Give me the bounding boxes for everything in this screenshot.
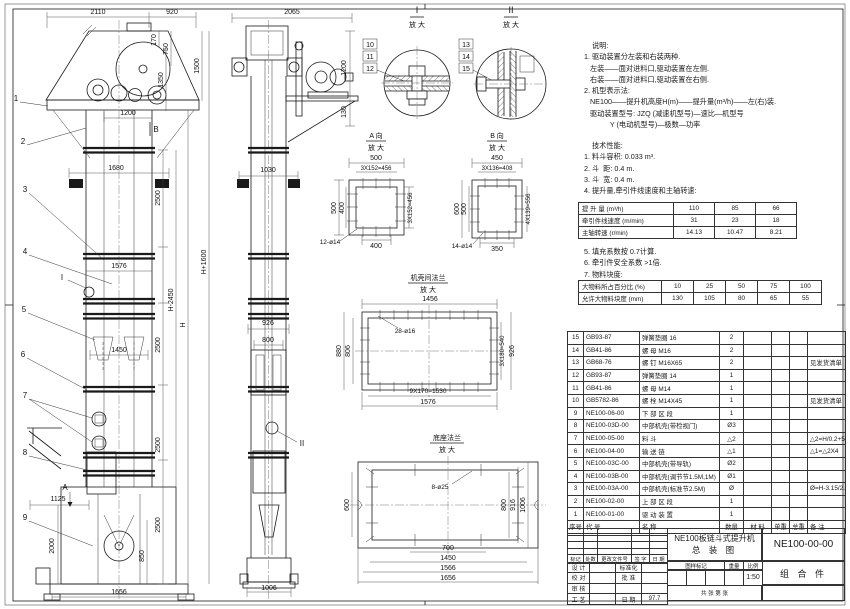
- dim-label: 1200: [341, 60, 348, 76]
- base-flange-view: [350, 443, 546, 584]
- table-row: [568, 535, 668, 542]
- dim-label: H+1600: [201, 250, 208, 275]
- title-block-empty-cell: [762, 585, 845, 601]
- dim-label: 350: [491, 246, 503, 253]
- dim-label: 3X152=456: [361, 166, 393, 172]
- dim-label: 4X139=556: [526, 193, 532, 225]
- table-row: 2NE100-02-00上 部 区 段1: [568, 495, 846, 508]
- dim-label: 2500: [155, 437, 162, 453]
- text-line: 4. 提升量,牵引件线速度和主轴转速:: [584, 185, 697, 196]
- dim-label: 500: [331, 202, 338, 214]
- part-balloon-9: 9: [23, 513, 28, 522]
- title-block: 标记处数更改文件号签 字日 期 设 计标准化校 对批 准审 核工 艺日 期97.…: [567, 528, 845, 601]
- notes-block: 说明:1. 驱动装置分左装和右装两种. 左装——面对进料口,驱动装置在左侧. 右…: [584, 40, 776, 130]
- table-row: 4NE100-03B-00中部机壳(调节节1.5M,1M)Ø1: [568, 470, 846, 483]
- view-title-A-sub: 放 大: [368, 143, 384, 152]
- table-row: 审 核: [568, 583, 668, 594]
- dim-label: 1656: [111, 589, 127, 596]
- text-line: 1. 料斗容积: 0.033 m³.: [584, 151, 697, 162]
- dim-label: 1500: [194, 58, 201, 74]
- table-row: 1NE100-01-00驱 动 装 置1: [568, 508, 846, 521]
- bom-table: 15GB93-87弹簧垫圈 16214GB41-86螺 母 M16213GB68…: [567, 331, 846, 534]
- dim-label: 600: [344, 499, 351, 511]
- dim-label: 500: [461, 203, 468, 215]
- part-balloon-3: 3: [23, 185, 28, 194]
- detail-title-II: II: [508, 5, 513, 15]
- dim-label: 400: [339, 202, 346, 214]
- stamp-value-table: 1:50: [667, 569, 763, 586]
- dim-label: 1576: [111, 263, 127, 270]
- part-balloon-12: 12: [366, 66, 374, 73]
- part-balloon-10: 10: [366, 42, 374, 49]
- dim-label: 1656: [440, 575, 456, 582]
- table-row: 11GB41-86螺 母 M141: [568, 382, 846, 395]
- text-line: 说明:: [584, 40, 776, 51]
- view-title-base-flange: 底座法兰: [433, 433, 461, 442]
- dim-label: 3X136=408: [482, 166, 514, 172]
- dim-label: 400: [370, 243, 382, 250]
- table-row: 牵引件线速度 (m/min)312318: [579, 215, 797, 227]
- detail-title-II-sub: 放 大: [503, 20, 519, 29]
- text-line: Y (电动机型号)—极数—功率: [584, 119, 776, 130]
- view-title-casing-flange: 机壳间法兰: [411, 273, 446, 282]
- part-balloon-6: 6: [21, 350, 26, 359]
- dim-label: 1450: [111, 347, 127, 354]
- detail-title-I-sub: 放 大: [409, 20, 425, 29]
- drawing-title-line2: 总 装 图: [692, 544, 737, 556]
- part-balloon-7: 7: [23, 391, 28, 400]
- dim-label: 806: [345, 345, 352, 357]
- part-balloon-1: 1: [14, 94, 19, 103]
- dim-label: 1125: [50, 496, 65, 503]
- dim-label: 8-ø25: [432, 484, 449, 491]
- dim-label: 1680: [108, 165, 124, 172]
- dim-label: 12-ø14: [320, 239, 341, 246]
- table-row: [568, 529, 668, 536]
- table-row: 9NE100-06-00下 部 区 段1: [568, 407, 846, 420]
- view-title-base-flange-sub: 放 大: [439, 445, 455, 454]
- text-line: 5. 填充系数按 0.7计算.: [584, 246, 662, 257]
- detail-view-I: [381, 17, 453, 121]
- part-balloon-8: 8: [23, 448, 28, 457]
- view-title-B: B 向: [490, 131, 504, 140]
- dim-label: 28-ø16: [395, 328, 416, 335]
- tech-notes-block: 技术性能:1. 料斗容积: 0.033 m³.2. 斗 距: 0.4 m.3. …: [584, 140, 697, 196]
- table-row: 工 艺日 期97.7: [568, 594, 668, 605]
- table-row: 14GB41-86螺 母 M162: [568, 344, 846, 357]
- drawing-number: NE100-00-00: [762, 528, 845, 561]
- dim-label: 1200: [120, 110, 136, 117]
- dim-label: H: [180, 322, 187, 327]
- dim-label: 2500: [155, 190, 162, 206]
- table-row: 1:50: [668, 570, 763, 586]
- text-line: 7. 物料块度:: [584, 269, 662, 280]
- table-row: 15GB93-87弹簧垫圈 162: [568, 332, 846, 345]
- view-mark-A: A: [62, 483, 68, 492]
- tech-notes-block-2: 5. 填充系数按 0.7计算.6. 牵引件安全系数 >1倍.7. 物料块度:: [584, 246, 662, 280]
- dim-label: 14-ø14: [452, 243, 473, 250]
- table-row: 8NE100-03D-00中部机壳(带检视门)Ø3: [568, 420, 846, 433]
- dim-label: 1566: [440, 565, 456, 572]
- dim-label: H-2450: [168, 288, 175, 311]
- drawing-title-line1: NE100板链斗式提升机: [674, 533, 754, 544]
- table-row: [568, 542, 668, 549]
- part-balloon-15: 15: [462, 66, 470, 73]
- dim-label: 920: [166, 9, 178, 16]
- dim-label: 2000: [49, 538, 56, 554]
- part-balloon-14: 14: [462, 54, 470, 61]
- part-balloon-2: 2: [21, 137, 26, 146]
- table-row: 校 对批 准: [568, 573, 668, 584]
- part-balloon-4: 4: [23, 247, 28, 256]
- table-row: 13GB68-76螺 钉 M16X652见发货清单: [568, 357, 846, 370]
- text-line: 2. 斗 距: 0.4 m.: [584, 163, 697, 174]
- revision-table: 标记处数更改文件号签 字日 期: [567, 528, 668, 564]
- dim-label: 850: [139, 550, 146, 562]
- table-row: 3NE100-03A-00中部机壳(标准节2.5M)ØØ=H-3.15/2.5: [568, 483, 846, 496]
- view-title-casing-flange-sub: 放 大: [420, 285, 436, 294]
- part-balloon-13: 13: [462, 42, 470, 49]
- table-row: 主轴转速 (r/min)14.1310.478.21: [579, 227, 797, 239]
- detail-mark-II: II: [300, 439, 304, 448]
- table-row: 12GB93-87弹簧垫圈 141: [568, 369, 846, 382]
- dim-label: 1030: [260, 167, 276, 174]
- table-row: 7NE100-05-00料 斗△2△2=H/0.2+5.75: [568, 432, 846, 445]
- part-type-cell: 组 合 件: [762, 561, 845, 585]
- table-row: 大物料所占百分比 (%)10255075100: [579, 281, 822, 293]
- text-line: 2. 机型表示法:: [584, 85, 776, 96]
- side-view: [232, 13, 358, 600]
- table-row: 6NE100-04-00输 送 链△1△1=△2X4: [568, 445, 846, 458]
- text-line: 技术性能:: [584, 140, 697, 151]
- lump-size-table: 大物料所占百分比 (%)10255075100允许大物料块度 (mm)13010…: [578, 280, 822, 305]
- dim-label: 3X152=456: [408, 192, 414, 224]
- table-row: 提 升 量 (m³/h)1108566: [579, 203, 797, 215]
- dim-label: 1006: [520, 497, 527, 513]
- dim-label: 926: [509, 345, 516, 357]
- part-balloon-11: 11: [366, 54, 373, 61]
- dim-label: 926: [262, 320, 274, 327]
- sheet-count-cell: 共 张 第 张: [667, 585, 762, 601]
- dim-label: 916: [510, 499, 517, 511]
- text-line: NE100——提升机高度H(m)——提升量(m³/h)——左(右)装.: [584, 96, 776, 107]
- part-balloon-5: 5: [22, 305, 27, 314]
- detail-mark-I: I: [61, 273, 63, 282]
- dimension-labels: 2110920170750135015001200168015761450250…: [14, 5, 532, 596]
- dim-label: 1350: [158, 72, 165, 88]
- dim-label: 170: [151, 34, 158, 46]
- drawing-sheet: 2110920170750135015001200168015761450250…: [0, 0, 850, 609]
- table-row: 允许大物料块度 (mm)130105806555: [579, 293, 822, 305]
- dim-label: 2500: [155, 337, 162, 353]
- text-line: 6. 牵引件安全系数 >1倍.: [584, 257, 662, 268]
- text-line: 左装——面对进料口,驱动装置在左侧.: [584, 63, 776, 74]
- detail-title-I: I: [416, 5, 419, 15]
- dim-label: 880: [336, 345, 343, 357]
- text-line: 3. 斗 宽: 0.4 m.: [584, 174, 697, 185]
- dim-label: 2110: [90, 9, 105, 16]
- detail-leader-boxes: [363, 39, 495, 82]
- front-view: [20, 12, 209, 600]
- dim-label: 130: [341, 106, 348, 118]
- text-line: 1. 驱动装置分左装和右装两种.: [584, 51, 776, 62]
- dim-label: 700: [442, 545, 454, 552]
- table-row: 10GB5782-86螺 栓 M14X451见发货清单: [568, 394, 846, 407]
- table-row: 5NE100-03C-00中部机壳(带导轨)Ø2: [568, 457, 846, 470]
- dim-label: 3X180=540: [500, 335, 506, 367]
- detail-view-II: [474, 17, 546, 121]
- view-title-A: A 向: [369, 131, 382, 140]
- dim-label: 1576: [420, 399, 436, 406]
- table-row: [568, 548, 668, 555]
- text-line: 右装——面对进料口,驱动装置在右侧.: [584, 74, 776, 85]
- signature-table: 设 计标准化校 对批 准审 核工 艺日 期97.7: [567, 562, 668, 605]
- dim-label: 750: [163, 43, 170, 55]
- view-mark-B: B: [153, 125, 158, 134]
- dim-label: 9X170=1530: [409, 388, 446, 395]
- dim-label: 800: [262, 337, 274, 344]
- text-line: 驱动装置型号: JZQ (减速机型号)—速比—机型号: [584, 108, 776, 119]
- drawing-title-box: NE100板链斗式提升机 总 装 图: [667, 528, 762, 561]
- dim-label: 800: [501, 499, 508, 511]
- dim-label: 1450: [440, 555, 456, 562]
- table-row: 设 计标准化: [568, 562, 668, 573]
- dim-label: 2065: [284, 9, 300, 16]
- dim-label: 600: [454, 203, 461, 215]
- performance-table: 提 升 量 (m³/h)1108566牵引件线速度 (m/min)312318主…: [578, 202, 797, 239]
- dim-label: 1006: [261, 585, 277, 592]
- dim-label: 500: [370, 155, 382, 162]
- dim-label: 2500: [155, 517, 162, 533]
- dim-label: 450: [491, 155, 503, 162]
- view-title-B-sub: 放 大: [489, 143, 505, 152]
- dim-label: 1456: [422, 296, 438, 303]
